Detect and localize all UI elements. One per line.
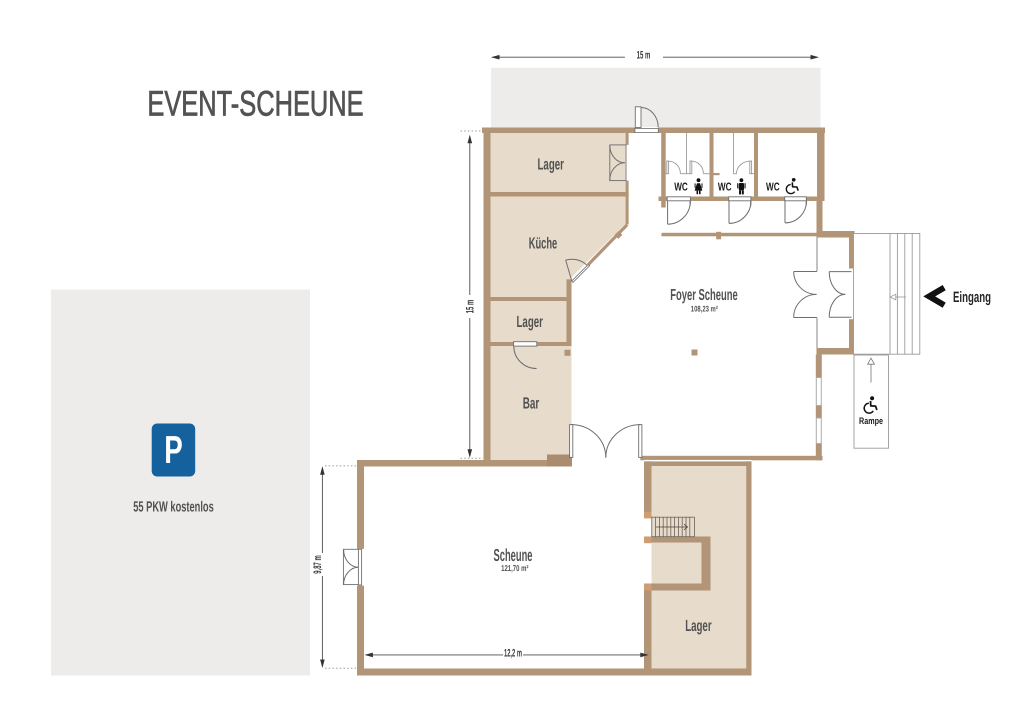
svg-text:Rampe: Rampe [859, 416, 883, 427]
svg-text:EVENT-SCHEUNE: EVENT-SCHEUNE [147, 84, 363, 124]
svg-text:Lager: Lager [685, 617, 712, 635]
svg-text:12,2 m: 12,2 m [504, 648, 522, 660]
svg-text:WC: WC [674, 181, 688, 193]
svg-text:P: P [164, 429, 183, 472]
svg-text:121,70 m²: 121,70 m² [501, 563, 528, 573]
svg-text:108,23 m²: 108,23 m² [691, 305, 718, 314]
svg-text:15 m: 15 m [464, 299, 476, 313]
svg-text:Lager: Lager [538, 155, 565, 173]
svg-text:15 m: 15 m [637, 50, 651, 62]
svg-text:Scheune: Scheune [494, 545, 533, 565]
svg-text:55 PKW kostenlos: 55 PKW kostenlos [133, 499, 214, 515]
svg-text:Eingang: Eingang [953, 289, 991, 306]
svg-text:9,87 m: 9,87 m [312, 555, 324, 574]
svg-text:WC: WC [766, 181, 780, 193]
svg-text:Küche: Küche [529, 234, 558, 252]
svg-text:WC: WC [718, 181, 732, 193]
svg-text:Bar: Bar [523, 395, 540, 413]
svg-text:Foyer Scheune: Foyer Scheune [670, 287, 738, 304]
svg-text:Lager: Lager [517, 313, 544, 331]
